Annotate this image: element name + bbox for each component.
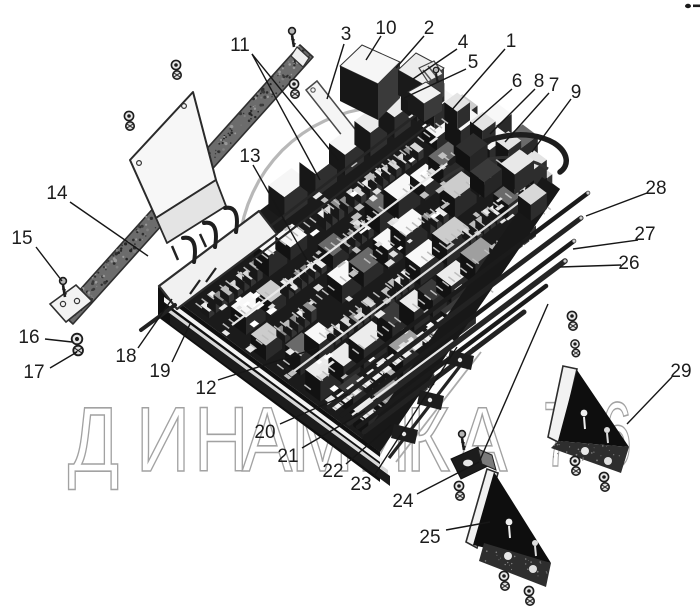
svg-text:7: 7 [549, 75, 560, 96]
svg-text:20: 20 [254, 422, 275, 443]
svg-text:28: 28 [645, 178, 666, 199]
svg-text:Н: Н [194, 388, 248, 491]
svg-text:29: 29 [670, 361, 691, 382]
svg-text:2: 2 [424, 18, 435, 39]
svg-text:22: 22 [322, 461, 343, 482]
svg-text:15: 15 [11, 228, 32, 249]
svg-text:8: 8 [534, 71, 545, 92]
svg-text:14: 14 [46, 183, 68, 204]
svg-text:Д: Д [68, 388, 119, 491]
svg-text:10: 10 [375, 18, 396, 39]
svg-text:3: 3 [341, 24, 352, 45]
svg-text:17: 17 [23, 362, 44, 383]
svg-text:11: 11 [230, 35, 250, 56]
svg-text:27: 27 [634, 224, 655, 245]
svg-text:12: 12 [195, 378, 216, 399]
svg-text:1: 1 [506, 31, 517, 52]
svg-text:5: 5 [468, 52, 479, 73]
svg-text:25: 25 [419, 527, 440, 548]
svg-text:16: 16 [18, 327, 39, 348]
svg-text:19: 19 [149, 361, 170, 382]
svg-text:18: 18 [115, 346, 136, 367]
svg-text:6: 6 [512, 71, 523, 92]
svg-text:26: 26 [618, 253, 639, 274]
svg-text:13: 13 [239, 146, 260, 167]
svg-text:9: 9 [571, 82, 582, 103]
svg-text:21: 21 [277, 446, 298, 467]
svg-text:23: 23 [350, 474, 371, 495]
svg-text:И: И [136, 388, 190, 491]
svg-text:4: 4 [458, 32, 469, 53]
svg-text:24: 24 [392, 491, 414, 512]
